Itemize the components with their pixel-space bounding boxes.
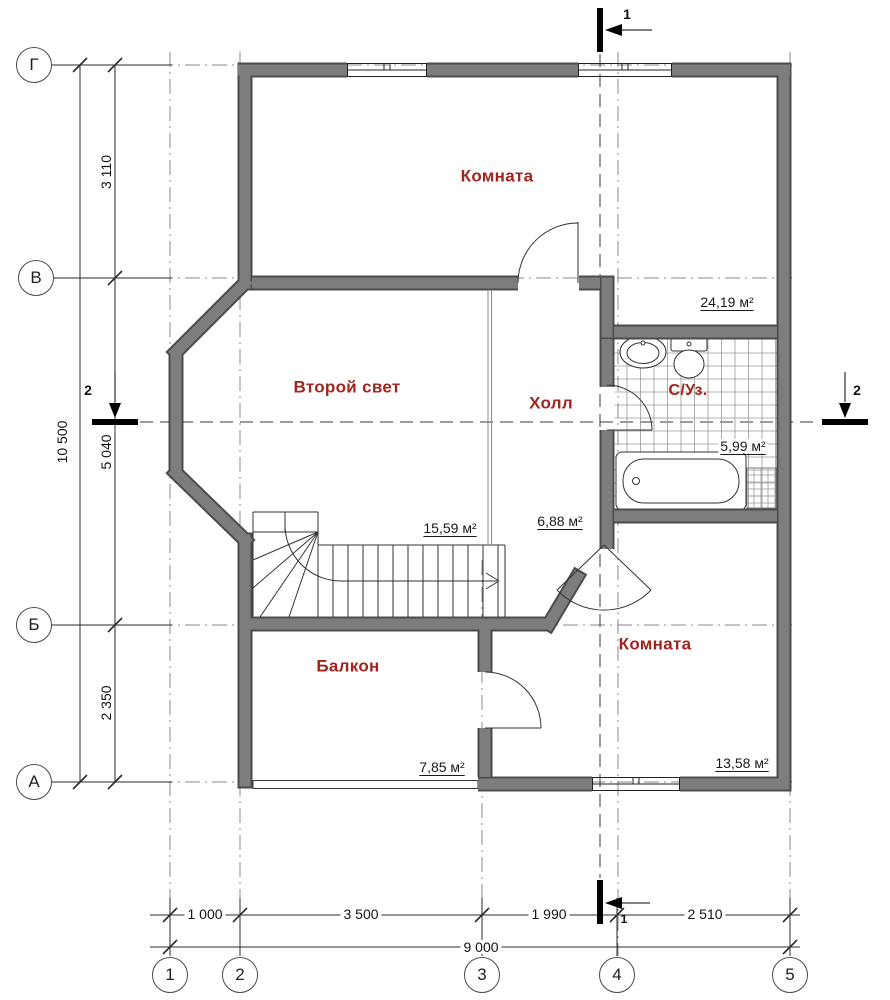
area-label-bathroom: 5,99 м²: [718, 439, 767, 453]
area-label-hall: 6,88 м²: [535, 514, 584, 528]
axis-bubble-g: Г: [16, 47, 52, 83]
area-label-balcony: 7,85 м²: [417, 760, 466, 774]
bathtub-icon: [616, 452, 746, 510]
axis-bubble-a: А: [16, 764, 52, 800]
area-label-top-room: 24,19 м²: [698, 295, 755, 309]
dim-left-seg-1: 3 110: [99, 152, 113, 192]
room-label-bathroom: С/Уз.: [668, 383, 707, 399]
sink-icon: [620, 336, 666, 368]
section-label-left: 2: [84, 383, 92, 397]
axis-bubble-b: Б: [16, 607, 52, 643]
section-label-bottom: 1: [621, 913, 628, 925]
dim-bottom-seg-3: 1 990: [528, 907, 569, 921]
room-label-bottom-room: Комната: [619, 636, 692, 653]
floor-plan: Г В Б А 1 2 3 4 5 10 500 3 110 5 040 2 3…: [0, 0, 890, 1000]
room-label-hall: Холл: [529, 395, 573, 412]
dim-bottom-seg-4: 2 510: [684, 907, 725, 921]
section-marker-right: [822, 372, 868, 425]
floor-plan-canvas: [0, 0, 890, 1000]
dim-left-seg-3: 2 350: [99, 682, 113, 723]
dim-bottom-seg-2: 3 500: [340, 907, 381, 921]
toilet-icon: [671, 338, 707, 378]
axis-bubble-1: 1: [152, 957, 188, 993]
dim-left-seg-2: 5 040: [99, 431, 113, 472]
section-label-top: 1: [623, 7, 631, 21]
dim-left-total: 10 500: [55, 418, 69, 467]
dim-bottom-seg-1: 1 000: [184, 907, 225, 921]
axis-bubble-2: 2: [222, 957, 258, 993]
room-label-top-room: Комната: [461, 168, 534, 185]
section-label-right: 2: [853, 383, 861, 397]
section-marker-left: [92, 372, 138, 425]
dim-bottom-total: 9 000: [460, 940, 501, 954]
door-hall-to-room: [518, 222, 578, 283]
window-bottom: [592, 778, 680, 791]
room-label-balcony: Балкон: [316, 658, 379, 675]
axis-bubble-4: 4: [599, 957, 635, 993]
axis-bubble-5: 5: [772, 957, 808, 993]
railings: [253, 291, 492, 789]
axis-bubble-v: В: [18, 260, 54, 296]
axis-bubble-3: 3: [464, 957, 500, 993]
balcony-railing: [253, 781, 478, 789]
door-balcony-room: [485, 672, 541, 728]
area-label-stairs: 15,59 м²: [421, 521, 478, 535]
area-label-bottom-room: 13,58 м²: [713, 756, 770, 770]
room-label-second-light: Второй свет: [293, 379, 400, 396]
